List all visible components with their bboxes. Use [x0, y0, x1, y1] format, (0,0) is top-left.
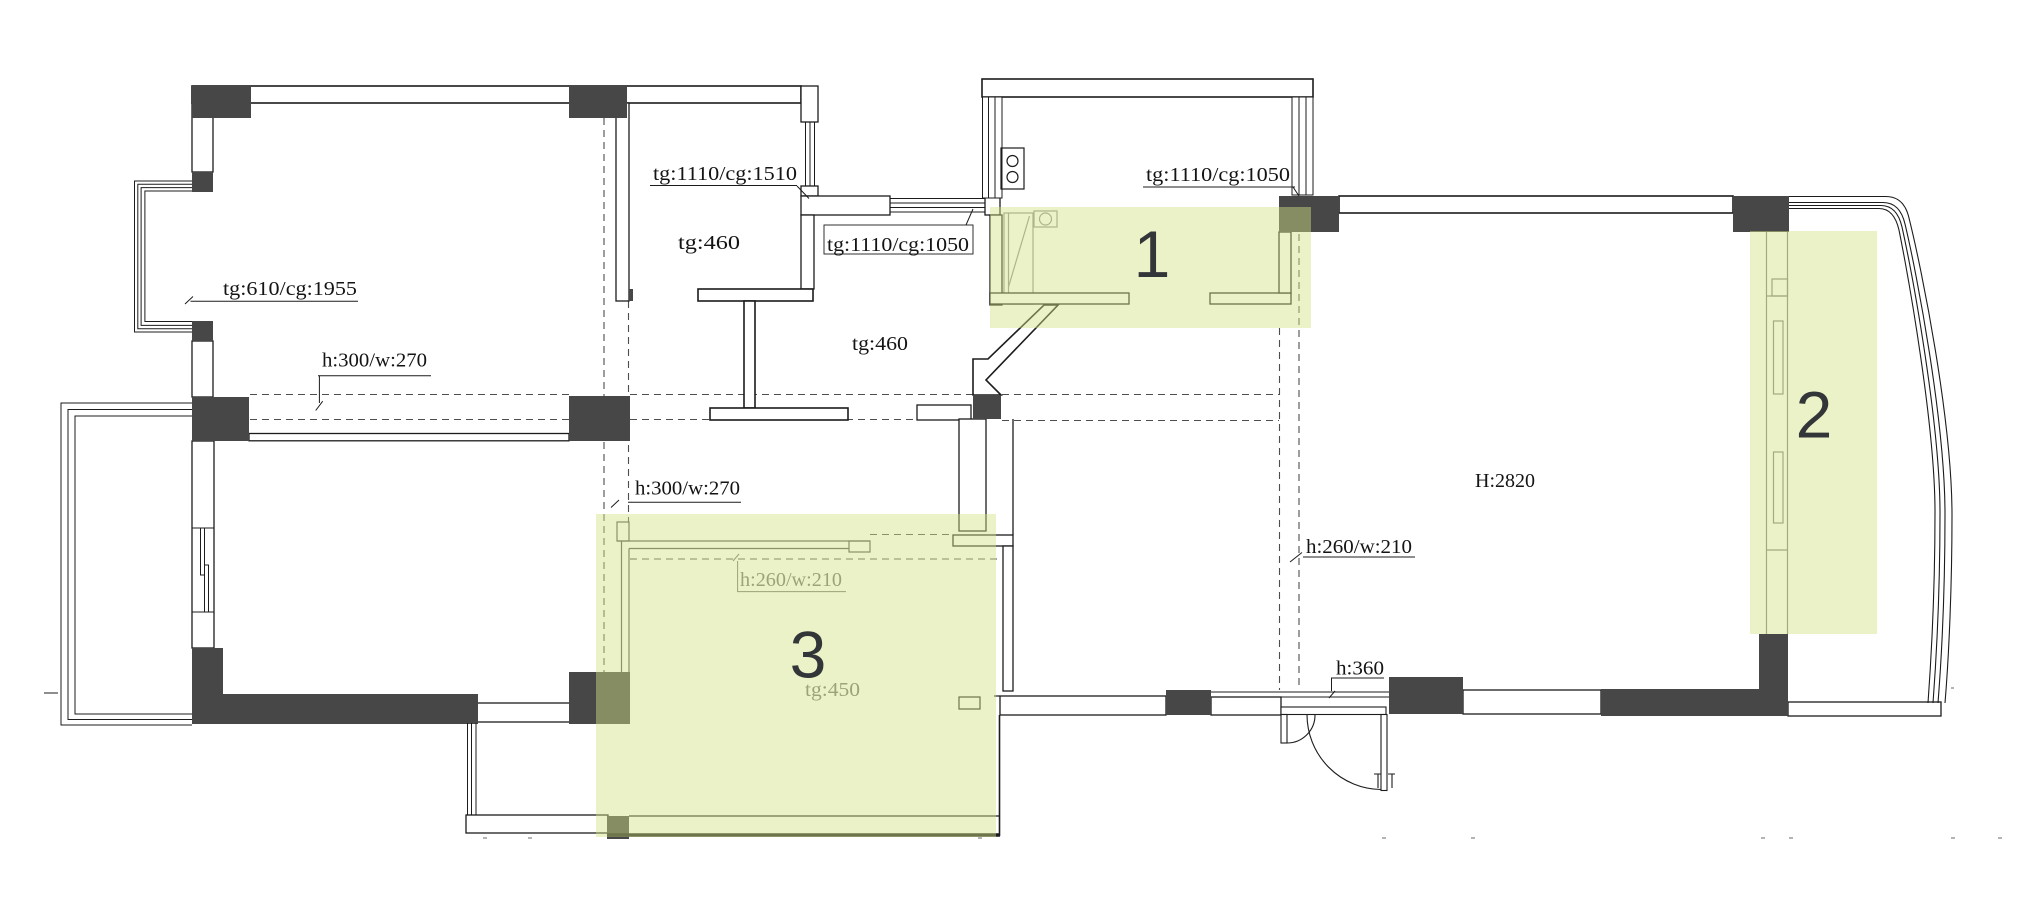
svg-text:tg:460: tg:460 [852, 333, 908, 355]
svg-text:h:300/w:270: h:300/w:270 [322, 350, 427, 372]
svg-text:1: 1 [1134, 217, 1171, 291]
svg-text:h:360: h:360 [1336, 658, 1384, 680]
svg-text:tg:610/cg:1955: tg:610/cg:1955 [223, 278, 357, 300]
svg-text:tg:460: tg:460 [678, 232, 740, 254]
svg-text:h:300/w:270: h:300/w:270 [635, 478, 740, 500]
svg-text:tg:1110/cg:1510: tg:1110/cg:1510 [653, 163, 797, 185]
svg-text:H:2820: H:2820 [1475, 470, 1535, 492]
svg-text:3: 3 [790, 618, 827, 692]
svg-text:2: 2 [1796, 378, 1833, 452]
svg-text:tg:1110/cg:1050: tg:1110/cg:1050 [827, 234, 969, 256]
svg-text:tg:1110/cg:1050: tg:1110/cg:1050 [1146, 164, 1290, 186]
svg-text:h:260/w:210: h:260/w:210 [1306, 536, 1412, 558]
